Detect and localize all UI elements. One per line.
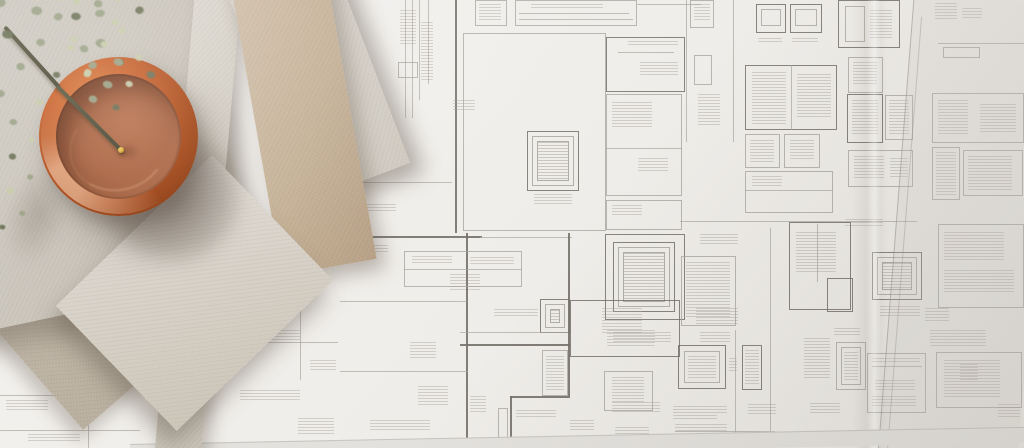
blueprint-annotation [790, 140, 814, 160]
blueprint-annotation [6, 400, 48, 410]
blueprint-line [340, 371, 468, 372]
blueprint-annotation [698, 94, 720, 126]
blueprint-annotation [797, 74, 831, 118]
blueprint-annotation [612, 402, 660, 414]
blueprint-annotation [28, 434, 80, 442]
blueprint-line [618, 52, 674, 53]
blueprint-line [352, 182, 452, 183]
blueprint-annotation [796, 232, 836, 272]
blueprint-annotation [470, 396, 486, 414]
blueprint-annotation [628, 41, 678, 46]
stem-tip-bead [118, 147, 124, 153]
blueprint-annotation [748, 404, 776, 416]
blueprint-line [519, 13, 629, 14]
blueprint-annotation [516, 410, 556, 418]
blueprint-annotation [370, 420, 430, 430]
blueprint-annotation [612, 377, 644, 403]
blueprint-room [694, 55, 712, 85]
blueprint-annotation [700, 234, 738, 244]
blueprint-annotation [310, 360, 336, 372]
blueprint-line [460, 332, 568, 333]
blueprint-line [791, 65, 792, 130]
blueprint-line [428, 0, 429, 84]
blueprint-annotation [612, 102, 652, 128]
blueprint-room [398, 62, 418, 78]
blueprint-annotation [745, 350, 759, 386]
blueprint-annotation [240, 390, 300, 400]
blueprint-line [340, 301, 467, 302]
blueprint-wall [460, 344, 570, 346]
blueprint-room [761, 9, 781, 26]
blueprint-room-dark [827, 278, 853, 312]
blueprint-annotation [607, 330, 655, 346]
blueprint-annotation [688, 356, 716, 380]
blueprint-annotation [810, 403, 840, 415]
blueprint-line [770, 228, 771, 448]
blueprint-annotation [752, 176, 782, 186]
blueprint-line [419, 0, 420, 100]
blueprint-annotation [612, 205, 642, 217]
blueprint-annotation [638, 158, 668, 172]
blueprint-annotation [750, 140, 774, 162]
blueprint-annotation [531, 4, 603, 10]
blueprint-frame-detail [527, 131, 579, 191]
blueprint-annotation [453, 100, 475, 110]
blueprint-annotation [534, 194, 572, 206]
blueprint-annotation [675, 424, 727, 431]
blueprint-line [733, 0, 734, 142]
blueprint-line [0, 430, 140, 431]
blueprint-annotation [400, 10, 416, 46]
blueprint-annotation [570, 420, 594, 432]
blueprint-line [404, 269, 522, 270]
blueprint-annotation [412, 256, 452, 264]
blueprint-annotation [804, 338, 830, 380]
blueprint-annotation [694, 4, 710, 22]
blueprint-line [745, 190, 833, 191]
blueprint-wall [510, 396, 570, 398]
blueprint-annotation [479, 4, 501, 22]
blueprint-annotation [673, 415, 717, 421]
blueprint-annotation [298, 418, 334, 436]
blueprint-room [795, 9, 817, 26]
blueprint-annotation [700, 332, 730, 342]
blueprint-annotation [494, 309, 538, 318]
blueprint-annotation [470, 257, 514, 264]
blueprint-line [300, 300, 301, 380]
blueprint-annotation [696, 308, 738, 324]
flat-lay-photo [0, 0, 1024, 448]
blueprint-annotation [410, 342, 436, 358]
blueprint-annotation [729, 358, 737, 372]
blueprint-line [686, 0, 687, 142]
blueprint-annotation [792, 38, 818, 44]
blueprint-annotation [418, 386, 448, 406]
blueprint-annotation [758, 38, 782, 44]
blueprint-line [519, 19, 633, 20]
blueprint-annotation [752, 72, 786, 124]
blueprint-annotation [640, 62, 678, 76]
blueprint-annotation [546, 356, 564, 390]
blueprint-line [606, 148, 682, 149]
blueprint-annotation [673, 406, 727, 414]
blueprint-line [480, 237, 572, 238]
blueprint-annotation [421, 22, 433, 80]
blueprint-frame-detail [540, 299, 570, 333]
blueprint-wall [455, 0, 457, 233]
